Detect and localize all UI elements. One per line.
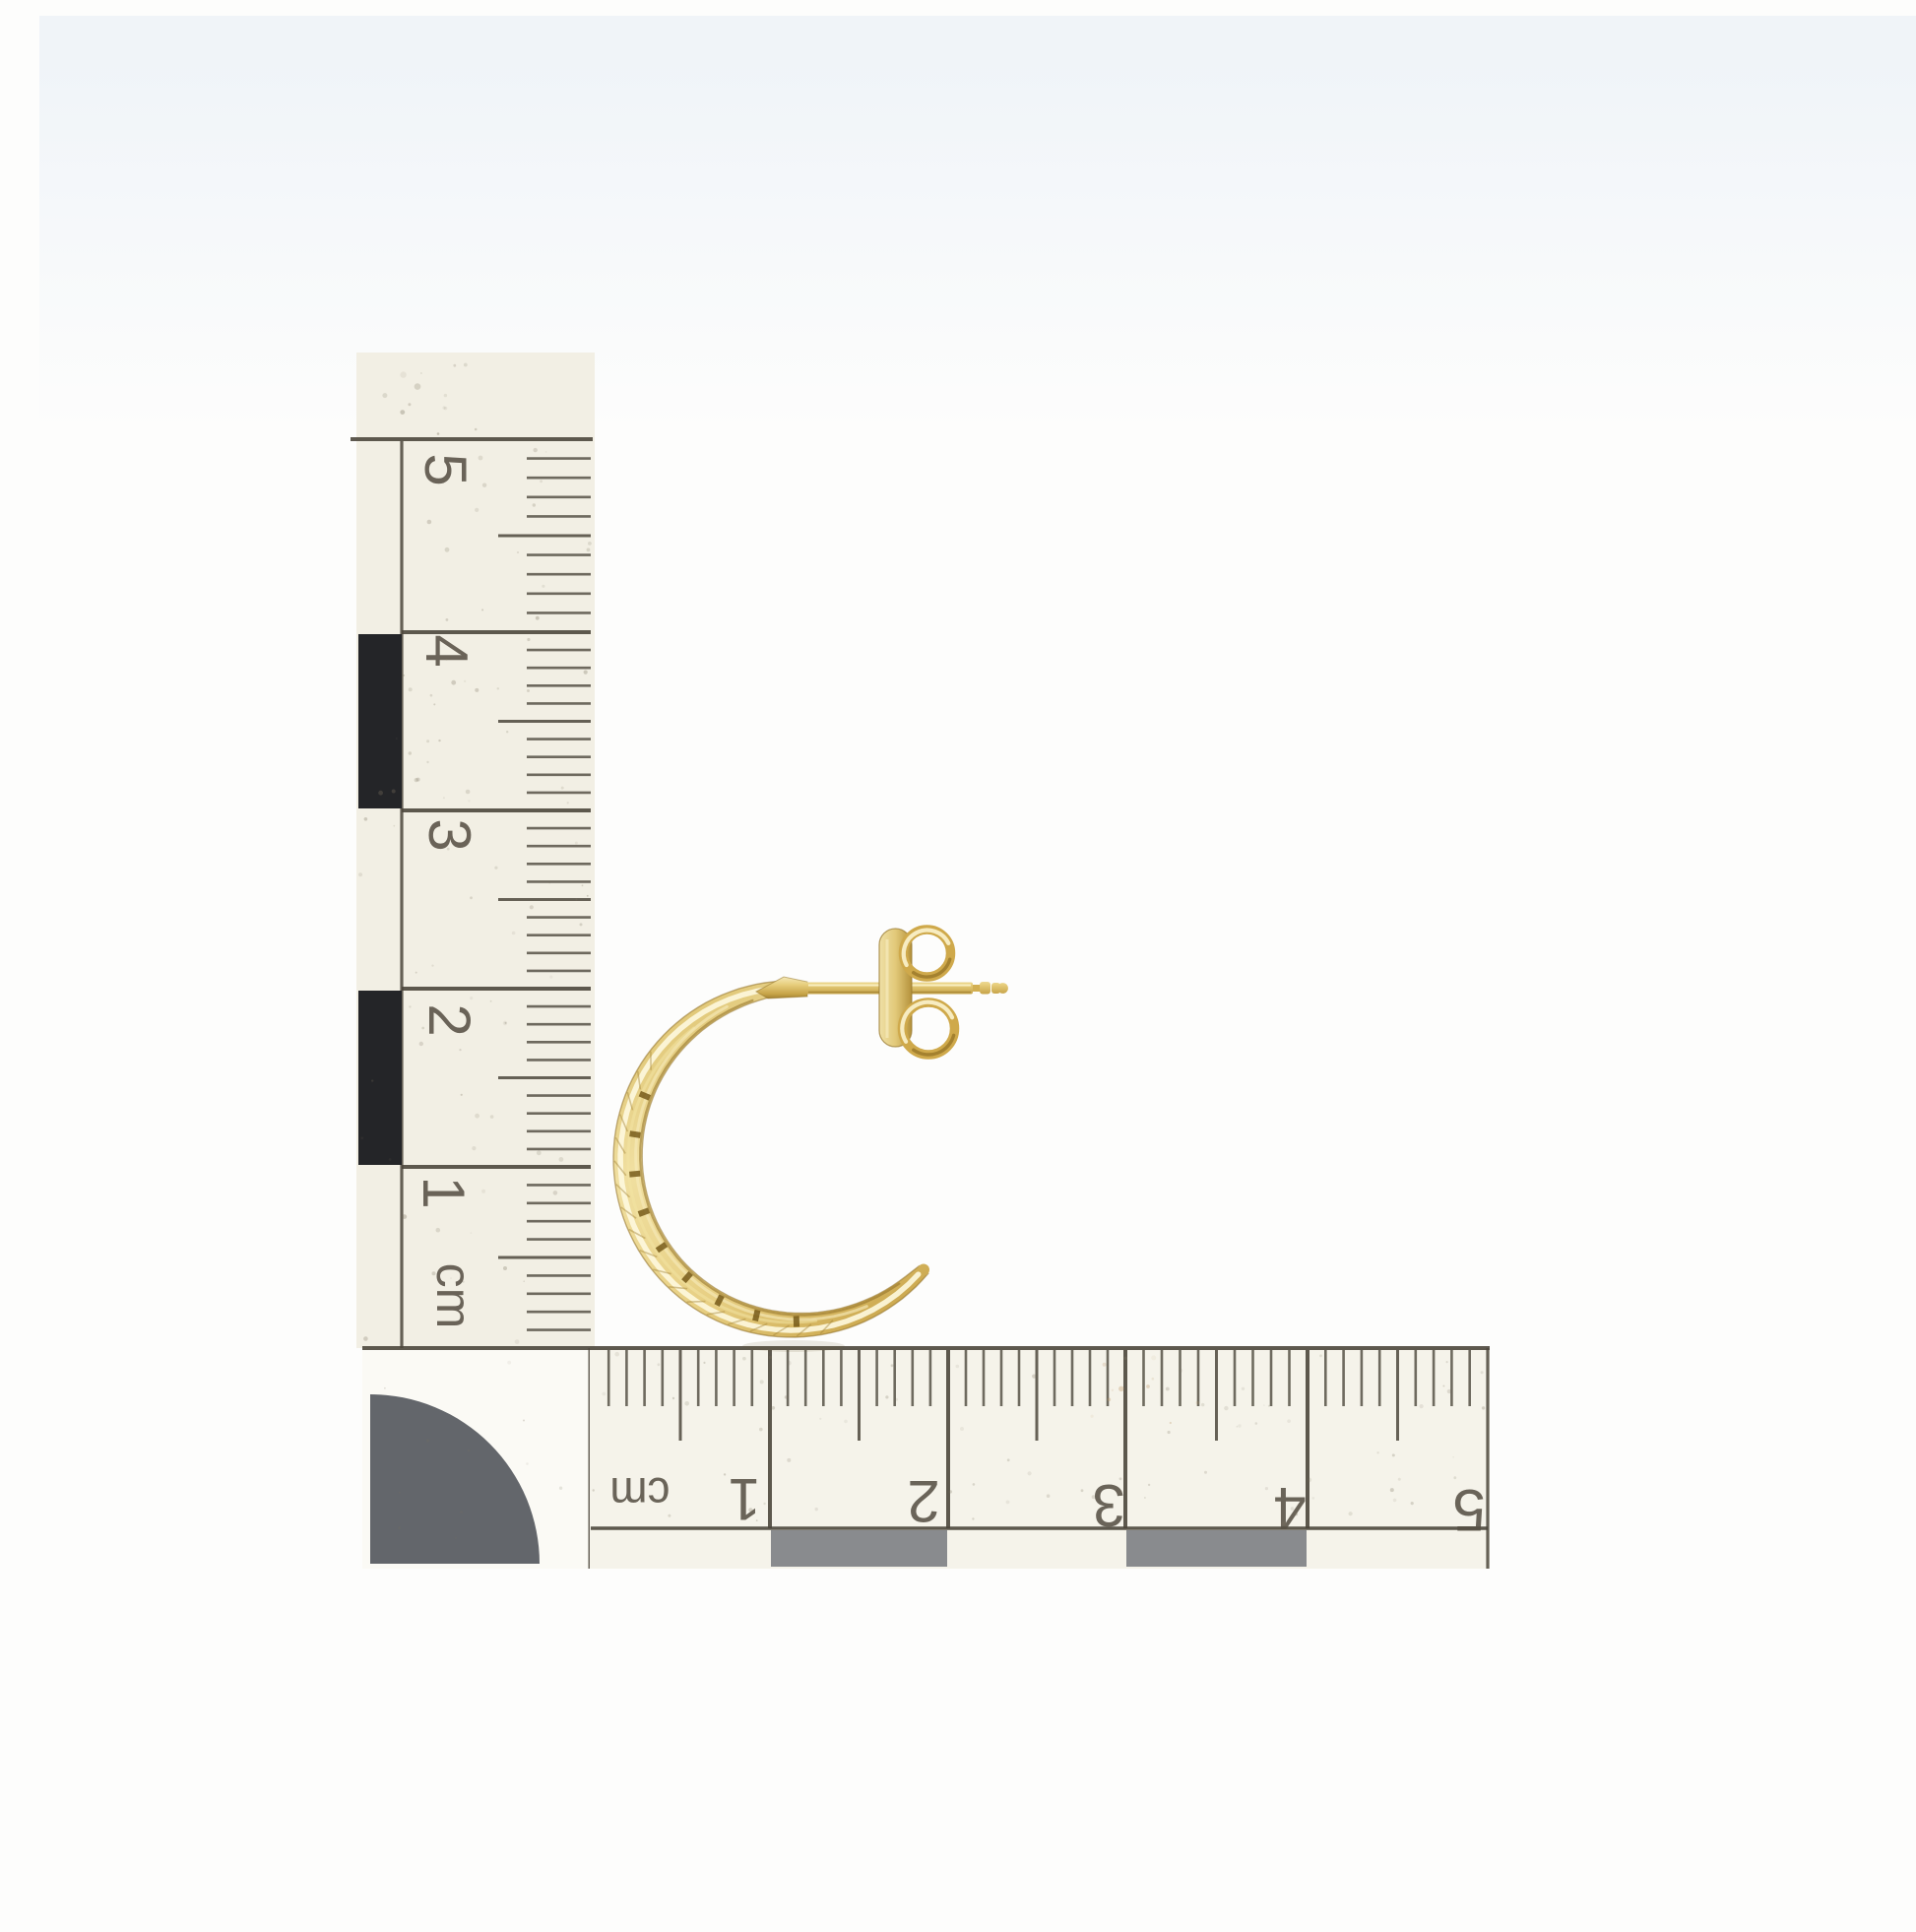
checker-block-gray [771,1530,947,1567]
speck [475,688,479,692]
speck [533,503,536,506]
speck [575,842,578,845]
speck [1446,1361,1448,1363]
speck [769,1356,772,1359]
speck [540,480,543,483]
speck [392,790,396,794]
speck [588,542,592,546]
ruler-number: 3 [416,818,482,851]
speck [400,410,405,415]
speck [475,1114,479,1119]
speck [1411,1502,1414,1505]
photo-canvas: 54321cm12345cm [39,16,1916,1932]
speck [1091,1415,1094,1418]
speck [1007,1458,1010,1461]
speck [468,800,470,802]
speck [1118,1386,1123,1391]
speck [479,456,483,461]
hoop-hatch-line [687,1302,706,1303]
speck [1281,1501,1283,1503]
hoop-slot [755,1311,758,1321]
ruler-number: 2 [907,1468,939,1534]
hoop-slot [629,1174,640,1175]
speck [526,1462,529,1465]
speck [471,1232,473,1234]
speck [475,508,479,512]
speck [587,548,591,552]
speck [1481,1371,1484,1374]
speck [444,407,447,410]
speck [658,1363,661,1366]
speck [1092,1495,1096,1499]
speck [1201,1403,1204,1406]
speck [1123,1357,1127,1361]
speck [1224,1406,1228,1410]
speck [724,1473,726,1475]
speck [534,448,538,452]
speck [602,1392,606,1396]
speck [443,797,445,799]
speck [763,1503,765,1505]
speck [371,1079,373,1081]
speck [523,1280,525,1282]
ruler-number: 1 [728,1466,760,1532]
speck [399,1492,401,1494]
speck [1047,1494,1051,1498]
speck [1398,1478,1401,1481]
corner-calibration-square [362,1348,590,1569]
speck [760,1380,764,1384]
speck [1265,1487,1268,1490]
ruler-number: 4 [1273,1475,1306,1541]
speck [956,1365,960,1369]
speck [378,791,383,796]
speck [403,675,405,676]
contact-shadow [742,1340,845,1352]
hoop-slot [639,1210,649,1214]
speck [1447,1389,1451,1393]
speck [972,1517,974,1519]
speck [466,790,471,795]
speck [1311,1497,1314,1500]
speck [506,731,508,733]
speck [1237,1426,1239,1428]
speck [1151,1355,1156,1360]
ruler-number: 5 [1452,1477,1485,1543]
hoop-slot [640,1094,650,1098]
speck [1170,1422,1172,1424]
speck [481,609,483,611]
speck [582,884,584,886]
speck [756,1519,758,1521]
speck [1282,1521,1286,1525]
speck [464,363,468,367]
speck [454,1537,457,1540]
speck [672,1397,674,1399]
speck [523,1420,525,1422]
speck [503,1266,507,1270]
speck [895,1353,897,1355]
speck [517,551,519,553]
ruler-number: 5 [413,453,479,485]
speck [1393,1499,1397,1503]
speck [445,547,450,552]
speck [432,1408,434,1410]
speck [415,383,421,390]
top-light-tint [39,16,1916,429]
speck [1152,1378,1155,1381]
speck [403,1214,408,1219]
speck [1148,1484,1150,1486]
speck [433,703,435,705]
speck [460,1511,463,1513]
ruler-unit-label: cm [609,1468,670,1519]
speck [885,1395,888,1398]
speck [527,689,530,692]
speck [453,364,456,367]
speck [363,1336,368,1341]
speck [1376,1451,1378,1453]
speck [787,1458,791,1462]
speck [742,1357,746,1361]
speck [548,881,550,883]
vertical-ruler: 54321cm [351,353,595,1348]
speck [481,1190,485,1193]
speck [559,1157,564,1162]
speck [684,1401,689,1406]
speck [1308,1478,1312,1483]
speck [1179,1369,1182,1373]
speck [553,1191,558,1195]
speck [580,923,583,926]
speck [536,616,540,620]
speck [1144,1497,1146,1499]
speck [545,451,547,453]
speck [1295,1513,1298,1515]
speck [432,1271,436,1275]
speck [772,1406,776,1410]
speck [1291,1507,1295,1511]
hoop-slot [630,1133,641,1135]
speck [1452,1456,1454,1458]
speck [446,659,448,661]
speck [396,738,398,740]
speck [1238,1424,1241,1427]
speck [515,1339,520,1344]
speck [426,1439,429,1442]
speck [575,898,577,900]
speck [444,394,447,397]
speck [451,680,456,685]
speck [1482,1406,1485,1409]
speck [415,972,417,974]
speck [490,1115,494,1119]
speck [949,1490,952,1493]
speck [1108,1398,1112,1402]
speck [759,1428,763,1432]
speck [398,1526,401,1529]
speck [409,1005,411,1007]
speck [494,867,497,869]
speck [815,1508,818,1511]
speck [1103,1363,1107,1367]
post-ridge [980,982,990,995]
speck [358,872,362,876]
speck [1263,1404,1265,1406]
speck [430,694,433,697]
speck [1392,1453,1395,1456]
speck [542,585,544,588]
speck [389,1158,392,1161]
speck [787,1361,792,1366]
post-tip [997,983,1008,994]
speck [1420,1404,1424,1408]
speck [463,1281,465,1283]
speck [444,478,447,481]
speck [382,393,387,398]
post-groove [973,985,980,992]
speck [1120,1491,1122,1493]
ruler-number: 2 [416,1003,482,1036]
speck [593,1489,595,1491]
speck [549,976,552,979]
speck [1166,1387,1170,1391]
speck [559,1487,562,1490]
speck [431,965,433,967]
speck [447,848,450,851]
speck [364,817,368,821]
speck [426,761,428,763]
speck [475,428,478,431]
speck [973,1483,976,1486]
checker-block-dark [358,991,402,1165]
speck [512,932,516,935]
speck [1287,1419,1291,1423]
speck [1032,1375,1036,1379]
speck [409,751,412,754]
speck [1081,1489,1084,1492]
speck [482,483,486,487]
speck [891,1364,894,1367]
speck [960,1427,964,1431]
speck [470,997,473,999]
speck [446,618,449,621]
speck [1146,1385,1150,1388]
speck [450,1277,452,1279]
speck [748,1508,752,1512]
speck [584,671,588,675]
speck [438,740,440,741]
speck [1112,1389,1114,1391]
speck [1390,1488,1394,1492]
speck [393,825,395,827]
speck [819,1418,821,1420]
speck [561,787,564,790]
ruler-number: 3 [1092,1472,1124,1538]
speck [420,372,422,374]
speck [436,1228,441,1233]
speck [703,1362,705,1364]
checker-block-dark [358,634,402,808]
speck [461,1094,463,1096]
speck [668,1514,671,1517]
speck [1442,1385,1444,1387]
speck [360,1136,363,1139]
speck [497,687,499,689]
speck [1006,1501,1010,1505]
speck [1168,1431,1171,1434]
speck [1349,1512,1353,1515]
speck [527,638,530,641]
speck [419,1042,423,1046]
ruler-number: 1 [411,1176,477,1208]
speck [507,1361,511,1365]
speck [614,1352,619,1357]
speck [409,687,413,691]
speck [505,1022,507,1024]
speck [468,1449,470,1451]
speck [415,778,418,782]
speck [1255,1422,1258,1425]
speck [384,1387,386,1389]
speck [426,740,429,742]
speck [1453,1476,1456,1479]
speck [459,1049,461,1051]
speck [437,432,440,435]
ruler-number: 4 [414,634,479,667]
speck [785,1395,788,1398]
speck [472,1146,476,1150]
speck [490,1000,492,1002]
speck [1319,1354,1322,1357]
speck [567,802,569,804]
speck [421,1027,424,1030]
speck [537,1150,542,1155]
speck [464,680,466,682]
speck [400,371,406,377]
horizontal-ruler-body [590,1348,1490,1569]
speck [408,403,411,406]
jewelry-scale-photo: 54321cm12345cm Yellow gold open hoop stu… [39,16,1916,1932]
speck [470,896,473,899]
speck [844,1420,848,1424]
speck [895,1398,898,1401]
speck [1204,1471,1207,1474]
speck [530,905,534,909]
speck [427,520,432,525]
speck [1268,1405,1270,1407]
speck [1028,1471,1032,1475]
speck [1242,1387,1245,1390]
speck [1196,1401,1200,1405]
speck [1119,1477,1122,1480]
speck [587,895,589,897]
